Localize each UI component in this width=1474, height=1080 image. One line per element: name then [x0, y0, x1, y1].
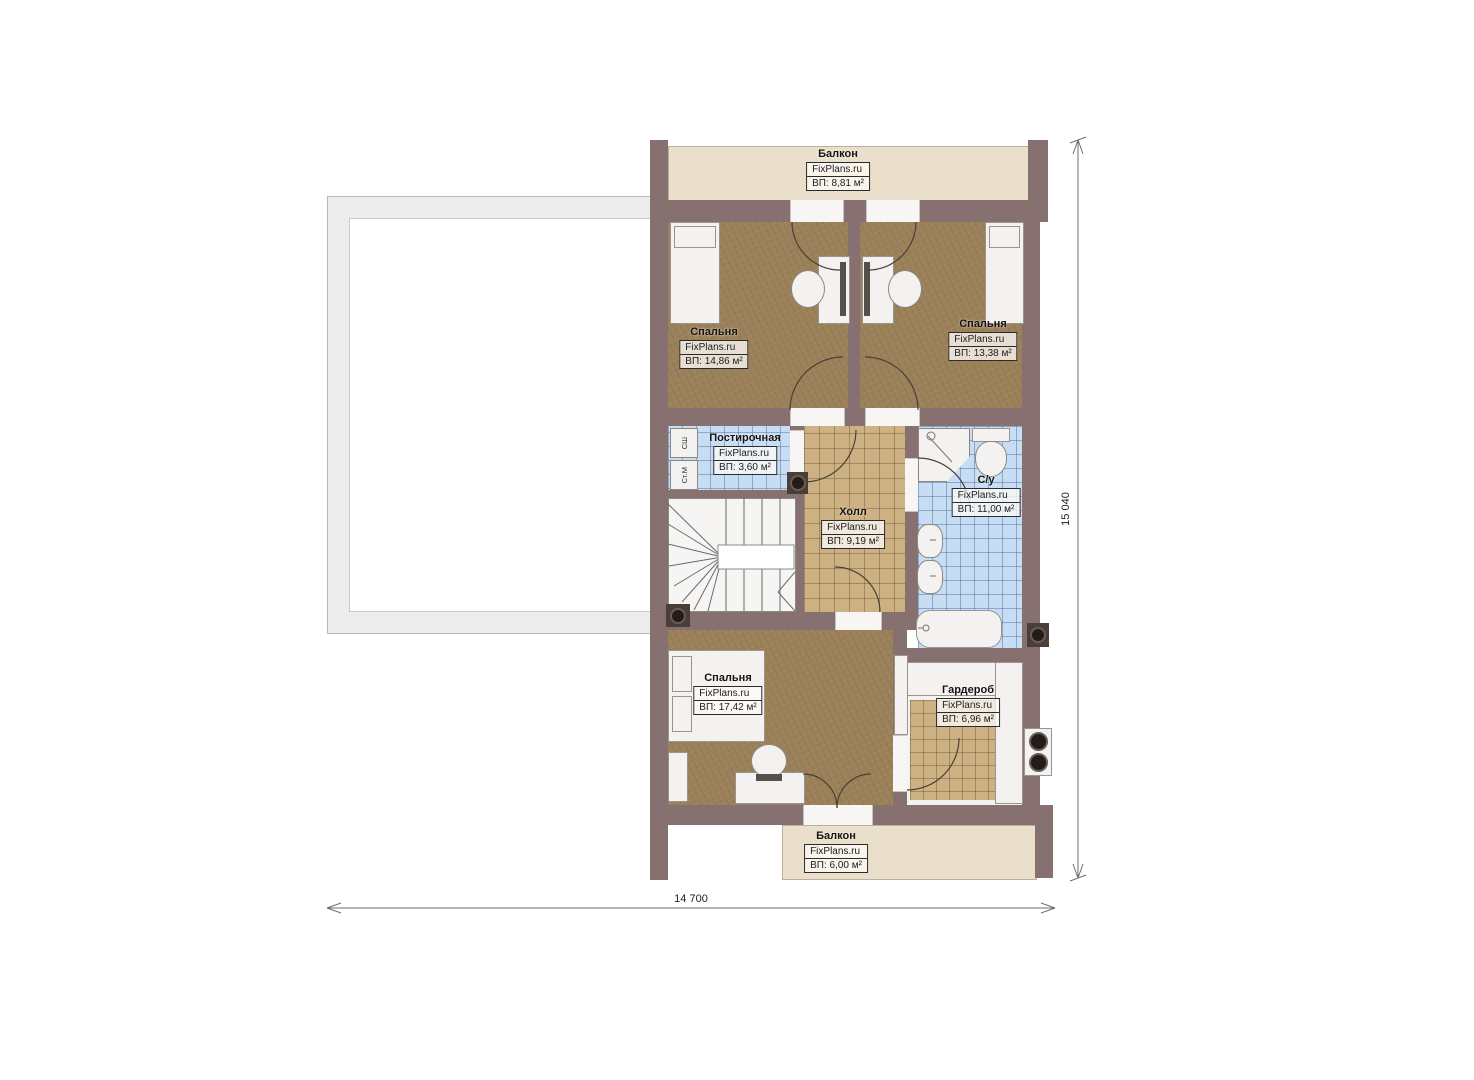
door-opening: [790, 408, 845, 426]
sliding-door: [894, 655, 908, 735]
room-label-laundry: Постирочная FixPlans.ru ВП: 3,60 м²: [709, 432, 780, 475]
wall: [907, 648, 1022, 662]
toilet-tank: [972, 428, 1010, 442]
watermark-text: FixPlans.ru: [714, 447, 776, 461]
room-name: Холл: [839, 506, 867, 518]
room-label-hall: Холл FixPlans.ru ВП: 9,19 м²: [821, 506, 885, 549]
wall: [668, 490, 796, 498]
room-info-box: FixPlans.ru ВП: 8,81 м²: [806, 162, 870, 191]
cabinet: [668, 752, 688, 802]
room-name: С/у: [977, 474, 994, 486]
watermark-text: FixPlans.ru: [694, 687, 761, 701]
door-opening: [865, 408, 920, 426]
room-label-bathroom: С/у FixPlans.ru ВП: 11,00 м²: [952, 474, 1021, 517]
dryer-label: СШ: [680, 437, 689, 449]
room-area: ВП: 14,86 м²: [680, 355, 747, 368]
pillow: [672, 696, 692, 732]
watermark-text: FixPlans.ru: [937, 699, 999, 713]
wall: [668, 408, 1022, 426]
sink: [917, 524, 943, 558]
room-label-wardrobe: Гардероб FixPlans.ru ВП: 6,96 м²: [936, 684, 1000, 727]
room-info-box: FixPlans.ru ВП: 6,00 м²: [804, 844, 868, 873]
watermark-text: FixPlans.ru: [822, 521, 884, 535]
room-info-box: FixPlans.ru ВП: 3,60 м²: [713, 446, 777, 475]
wall: [796, 498, 804, 612]
sink: [917, 560, 943, 594]
room-name: Гардероб: [942, 684, 994, 696]
door-opening: [790, 200, 844, 222]
room-name: Балкон: [818, 148, 858, 160]
watermark-text: FixPlans.ru: [805, 845, 867, 859]
room-info-box: FixPlans.ru ВП: 9,19 м²: [821, 520, 885, 549]
wall: [1028, 140, 1048, 204]
watermark-text: FixPlans.ru: [949, 333, 1016, 347]
roof-outline: [327, 196, 653, 634]
wall: [650, 140, 668, 880]
room-label-balcony-bottom: Балкон FixPlans.ru ВП: 6,00 м²: [804, 830, 868, 873]
room-info-box: FixPlans.ru ВП: 6,96 м²: [936, 698, 1000, 727]
monitor: [864, 262, 870, 316]
room-info-box: FixPlans.ru ВП: 17,42 м²: [693, 686, 762, 715]
washing-machine: Ст.М: [670, 460, 698, 490]
room-area: ВП: 17,42 м²: [694, 701, 761, 714]
vent-shaft: [666, 604, 690, 627]
room-name: Балкон: [816, 830, 856, 842]
chair: [751, 744, 787, 778]
wall: [905, 408, 918, 630]
vent-panel: [1024, 728, 1052, 776]
room-info-box: FixPlans.ru ВП: 11,00 м²: [952, 488, 1021, 517]
room-label-bedroom-right: Спальня FixPlans.ru ВП: 13,38 м²: [948, 318, 1017, 361]
floor-plan: СШ Ст.М: [0, 0, 1474, 1080]
watermark-text: FixPlans.ru: [953, 489, 1020, 503]
pillow: [674, 226, 716, 248]
room-info-box: FixPlans.ru ВП: 13,38 м²: [948, 332, 1017, 361]
dryer: СШ: [670, 428, 698, 458]
room-info-box: FixPlans.ru ВП: 14,86 м²: [679, 340, 748, 369]
monitor: [840, 262, 846, 316]
door-opening: [905, 458, 918, 512]
pillow: [672, 656, 692, 692]
door-opening: [835, 612, 882, 630]
wall: [1035, 825, 1053, 878]
room-area: ВП: 9,19 м²: [822, 535, 884, 548]
room-name: Спальня: [690, 326, 738, 338]
room-area: ВП: 11,00 м²: [953, 503, 1020, 516]
dimension-height: 15 040: [1060, 492, 1072, 526]
room-area: ВП: 6,00 м²: [805, 859, 867, 872]
chair: [888, 270, 922, 308]
room-area: ВП: 8,81 м²: [807, 177, 869, 190]
watermark-text: FixPlans.ru: [680, 341, 747, 355]
room-name: Спальня: [704, 672, 752, 684]
door-opening: [803, 805, 873, 825]
staircase: [668, 498, 796, 612]
door-opening: [866, 200, 920, 222]
roof-outline-inner: [349, 218, 652, 612]
vent-shaft: [787, 472, 808, 494]
room-label-bedroom-left: Спальня FixPlans.ru ВП: 14,86 м²: [679, 326, 748, 369]
washer-label: Ст.М: [680, 467, 689, 483]
room-name: Спальня: [959, 318, 1007, 330]
chair: [791, 270, 825, 308]
room-area: ВП: 3,60 м²: [714, 461, 776, 474]
watermark-text: FixPlans.ru: [807, 163, 869, 177]
toilet-bowl: [975, 441, 1007, 477]
monitor: [756, 774, 782, 781]
room-area: ВП: 6,96 м²: [937, 713, 999, 726]
vent-shaft: [1027, 623, 1049, 647]
room-label-bedroom-bottom: Спальня FixPlans.ru ВП: 17,42 м²: [693, 672, 762, 715]
room-name: Постирочная: [709, 432, 780, 444]
door-opening: [893, 735, 907, 792]
bathtub: [916, 610, 1002, 648]
dimension-width: 14 700: [674, 893, 708, 905]
room-area: ВП: 13,38 м²: [949, 347, 1016, 360]
room-label-balcony-top: Балкон FixPlans.ru ВП: 8,81 м²: [806, 148, 870, 191]
pillow: [989, 226, 1020, 248]
